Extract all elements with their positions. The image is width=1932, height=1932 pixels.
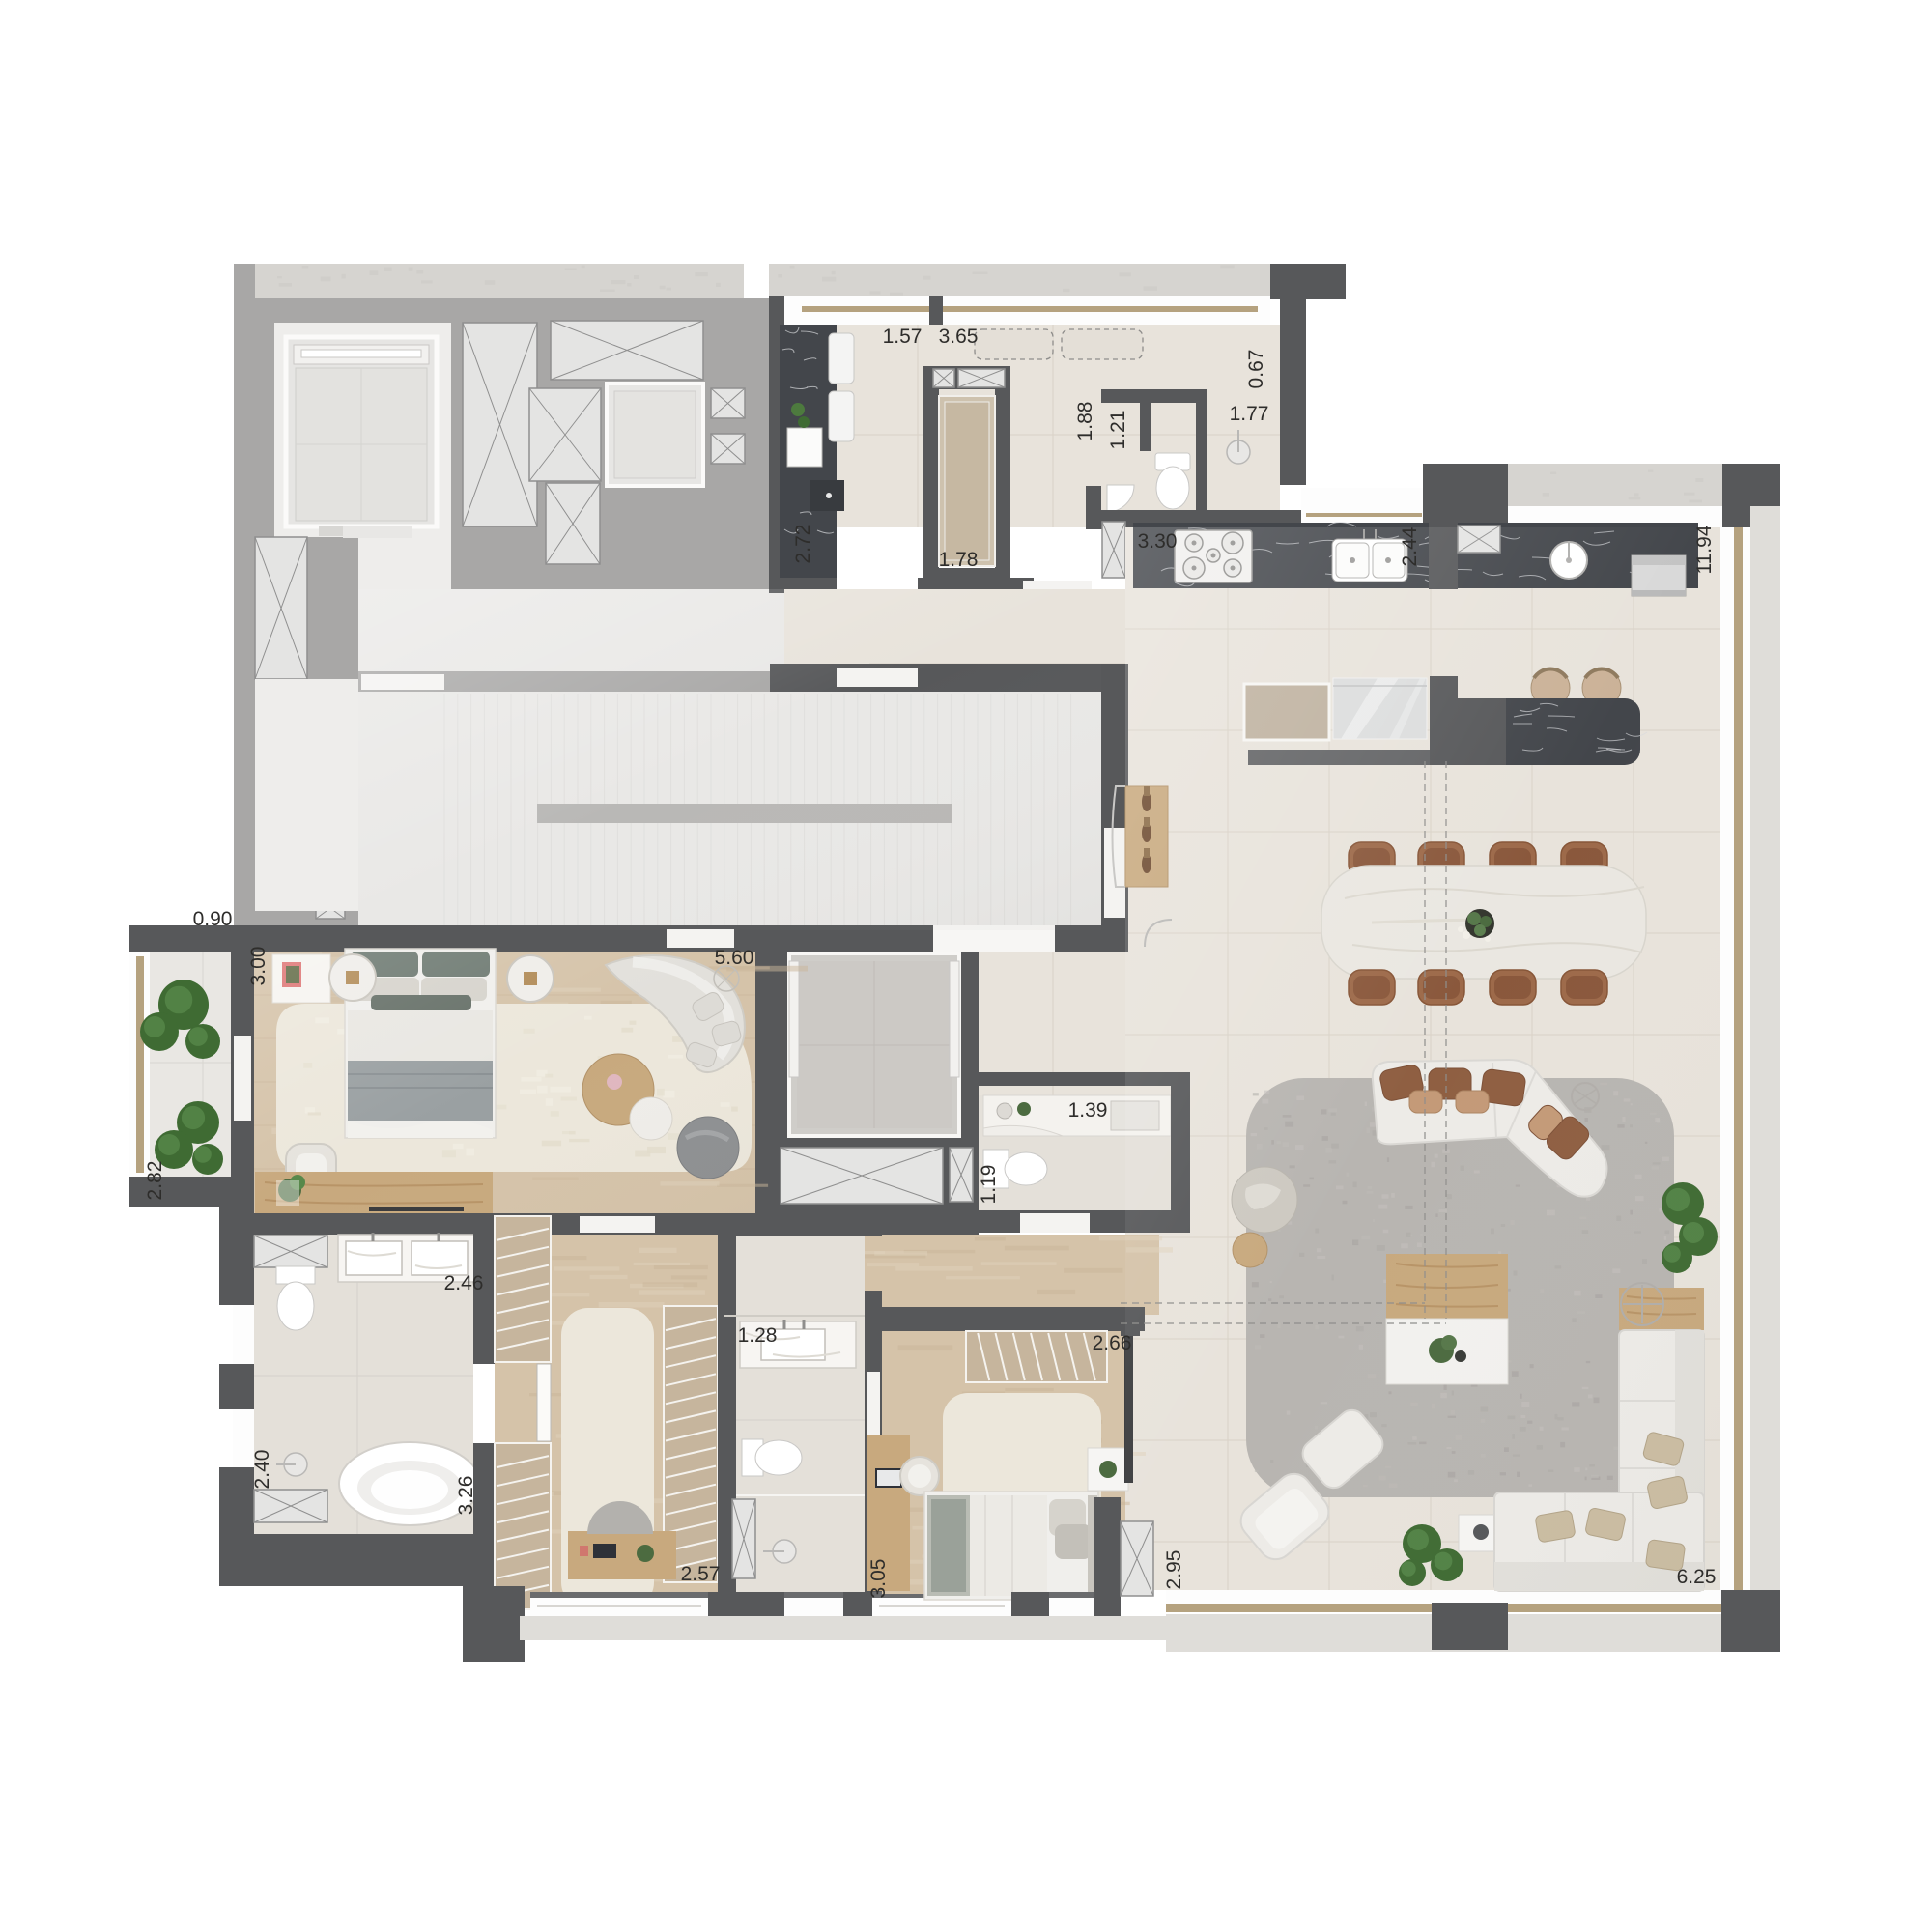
svg-text:6.25: 6.25	[1677, 1566, 1717, 1588]
svg-text:11.94: 11.94	[1693, 525, 1716, 574]
svg-text:3.05: 3.05	[867, 1559, 890, 1599]
svg-text:1.28: 1.28	[738, 1324, 778, 1347]
svg-text:1.19: 1.19	[978, 1165, 1000, 1205]
svg-text:2.95: 2.95	[1163, 1550, 1185, 1590]
svg-text:1.39: 1.39	[1068, 1099, 1108, 1122]
svg-text:1.88: 1.88	[1074, 402, 1096, 441]
svg-text:3.30: 3.30	[1138, 530, 1178, 553]
svg-text:0.90: 0.90	[193, 908, 233, 930]
svg-text:2.72: 2.72	[792, 525, 814, 564]
svg-text:2.82: 2.82	[144, 1161, 166, 1201]
svg-text:1.78: 1.78	[939, 549, 979, 571]
svg-text:2.66: 2.66	[1093, 1332, 1132, 1354]
svg-text:3.00: 3.00	[247, 947, 270, 986]
svg-text:1.77: 1.77	[1230, 403, 1269, 425]
svg-text:5.60: 5.60	[715, 947, 754, 969]
svg-text:1.21: 1.21	[1107, 411, 1129, 450]
svg-text:2.40: 2.40	[251, 1450, 273, 1490]
svg-text:2.44: 2.44	[1399, 526, 1421, 566]
svg-text:2.46: 2.46	[444, 1272, 484, 1294]
svg-text:0.67: 0.67	[1245, 350, 1267, 389]
svg-text:2.57: 2.57	[681, 1563, 721, 1585]
svg-text:1.57: 1.57	[883, 326, 923, 348]
svg-text:3.26: 3.26	[455, 1476, 477, 1516]
svg-text:3.65: 3.65	[939, 326, 979, 348]
